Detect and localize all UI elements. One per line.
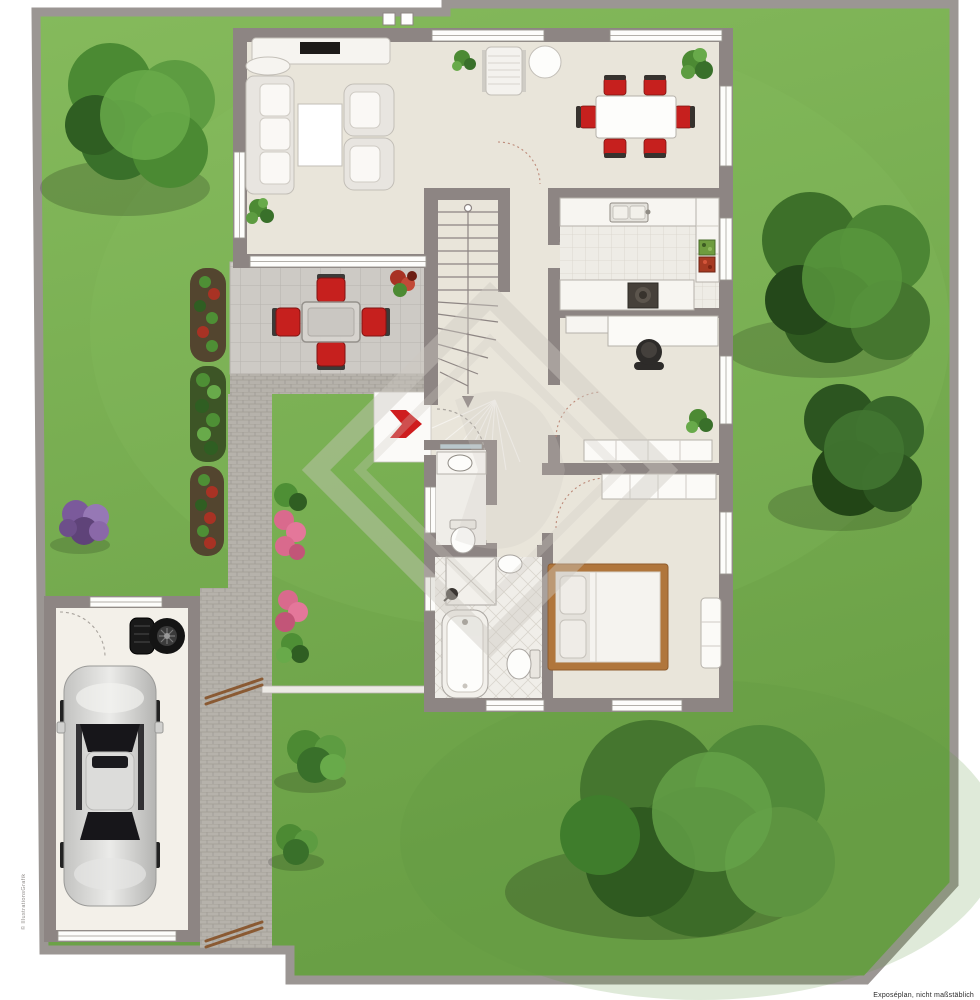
site-plan-svg [0, 0, 980, 1000]
sideboard-curve [246, 57, 290, 75]
coffee-table [298, 104, 342, 166]
kitchen-sink [610, 203, 651, 222]
car [57, 666, 163, 906]
kitchen [560, 198, 719, 310]
wc-sink [448, 455, 472, 471]
kitchen-counter-bottom [560, 280, 694, 310]
sofa [246, 76, 294, 194]
driveway [200, 588, 272, 948]
armchair-1 [344, 84, 394, 136]
flower-bed-2 [190, 366, 226, 462]
garage [44, 596, 200, 942]
floor-plan-illustration: Exposéplan, nicht maßstäblich © Illustra… [0, 0, 980, 1000]
side-watermark-text: © IllustrationsGrafik [21, 874, 27, 930]
armchair-2 [344, 138, 394, 190]
wall-block [401, 13, 413, 25]
dining-table [596, 96, 676, 138]
desk [608, 316, 718, 346]
car-mirror-right [155, 722, 163, 733]
flower-bed-3 [190, 466, 224, 556]
footnote-text: Exposéplan, nicht maßstäblich [873, 992, 974, 999]
round-side-table [529, 46, 561, 78]
terrace-table [302, 302, 360, 342]
cooktop [628, 283, 658, 308]
flower-bed-1 [190, 268, 226, 362]
chaise-lounge [482, 47, 526, 95]
bathroom [435, 555, 542, 698]
tv [300, 42, 340, 54]
bathroom-toilet [507, 649, 540, 679]
garden-fence [262, 686, 430, 693]
car-mirror-left [57, 722, 65, 733]
dresser [701, 598, 721, 668]
wall-block [383, 13, 395, 25]
tire-stack [130, 618, 185, 654]
